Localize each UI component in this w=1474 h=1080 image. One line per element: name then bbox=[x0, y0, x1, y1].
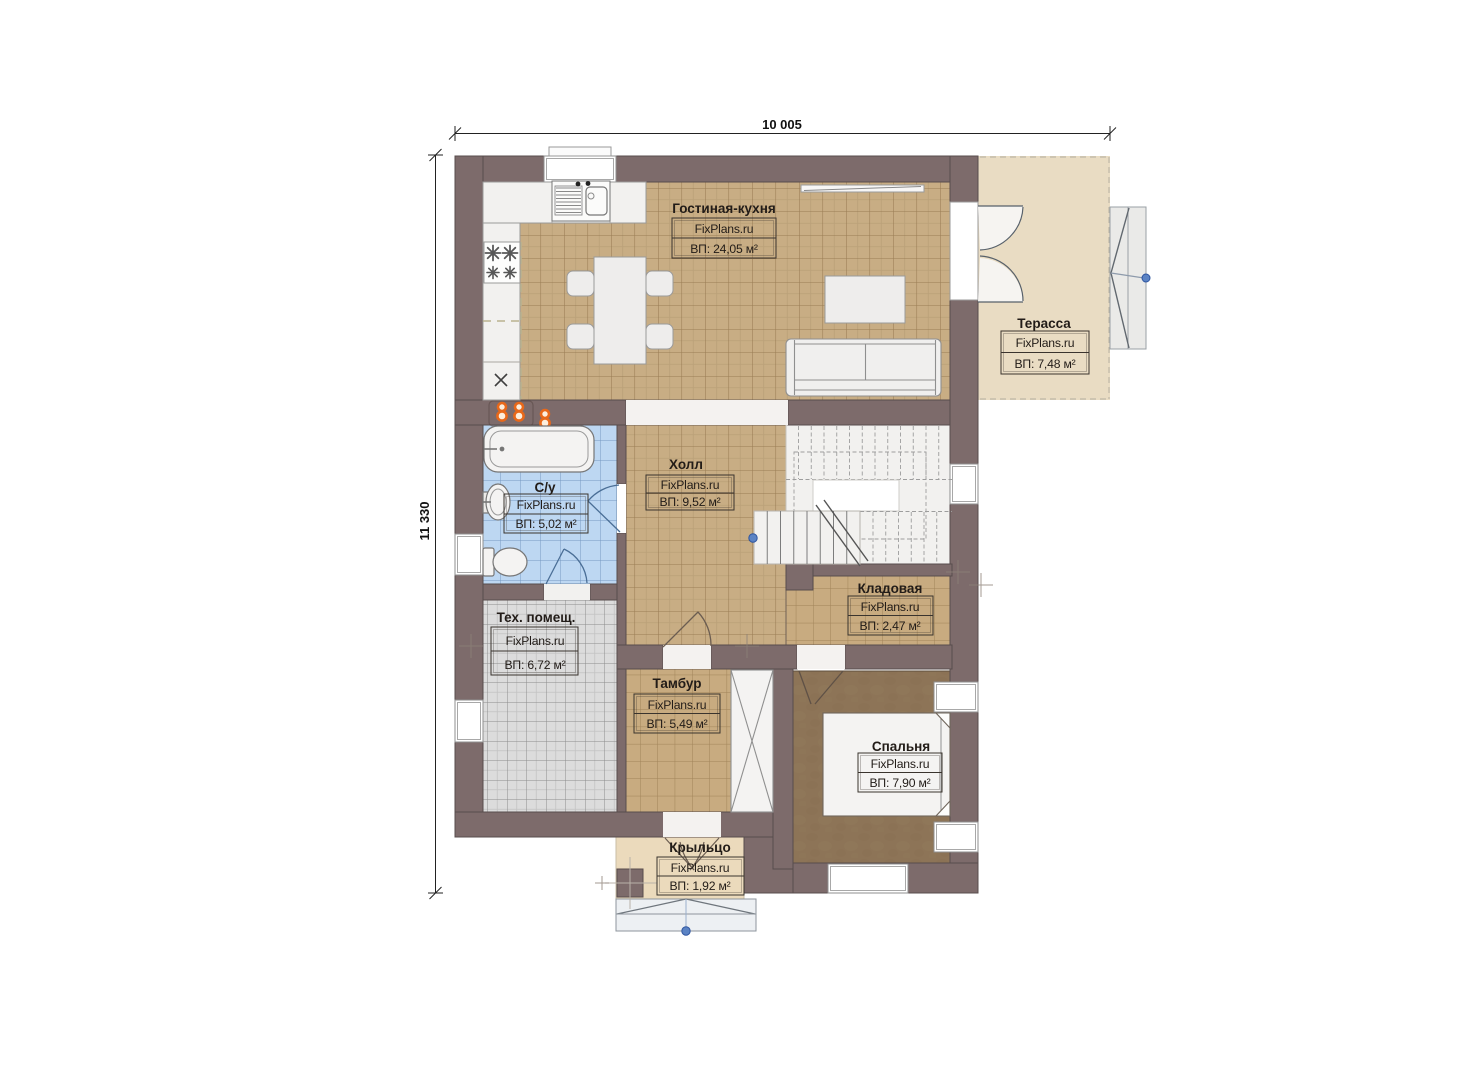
svg-text:Тамбур: Тамбур bbox=[653, 676, 702, 691]
svg-text:FixPlans.ru: FixPlans.ru bbox=[1016, 336, 1075, 350]
svg-text:Гостиная-кухня: Гостиная-кухня bbox=[672, 201, 775, 216]
svg-text:11 330: 11 330 bbox=[417, 501, 432, 540]
svg-text:FixPlans.ru: FixPlans.ru bbox=[661, 478, 720, 492]
svg-text:ВП: 7,48 м²: ВП: 7,48 м² bbox=[1014, 357, 1075, 371]
svg-text:ВП: 2,47 м²: ВП: 2,47 м² bbox=[859, 619, 920, 633]
svg-text:С/у: С/у bbox=[534, 480, 556, 495]
svg-text:10 005: 10 005 bbox=[762, 117, 802, 132]
svg-text:FixPlans.ru: FixPlans.ru bbox=[695, 222, 754, 236]
svg-text:FixPlans.ru: FixPlans.ru bbox=[506, 634, 565, 648]
svg-text:Крыльцо: Крыльцо bbox=[669, 840, 730, 855]
svg-text:ВП: 7,90 м²: ВП: 7,90 м² bbox=[869, 776, 930, 790]
svg-text:ВП: 5,49 м²: ВП: 5,49 м² bbox=[646, 717, 707, 731]
svg-text:FixPlans.ru: FixPlans.ru bbox=[517, 498, 576, 512]
svg-text:ВП: 6,72 м²: ВП: 6,72 м² bbox=[504, 658, 565, 672]
svg-text:FixPlans.ru: FixPlans.ru bbox=[671, 861, 730, 875]
svg-text:ВП: 24,05 м²: ВП: 24,05 м² bbox=[690, 242, 758, 256]
svg-text:ВП: 9,52 м²: ВП: 9,52 м² bbox=[659, 495, 720, 509]
svg-text:ВП: 1,92 м²: ВП: 1,92 м² bbox=[669, 879, 730, 893]
svg-text:Кладовая: Кладовая bbox=[858, 581, 923, 596]
svg-text:Спальня: Спальня bbox=[872, 739, 930, 754]
svg-text:FixPlans.ru: FixPlans.ru bbox=[861, 600, 920, 614]
svg-text:Тех. помещ.: Тех. помещ. bbox=[497, 610, 576, 625]
svg-text:Терасса: Терасса bbox=[1017, 316, 1071, 331]
svg-text:FixPlans.ru: FixPlans.ru bbox=[648, 698, 707, 712]
svg-text:FixPlans.ru: FixPlans.ru bbox=[871, 757, 930, 771]
svg-text:ВП: 5,02 м²: ВП: 5,02 м² bbox=[515, 517, 576, 531]
svg-text:Холл: Холл bbox=[669, 457, 703, 472]
